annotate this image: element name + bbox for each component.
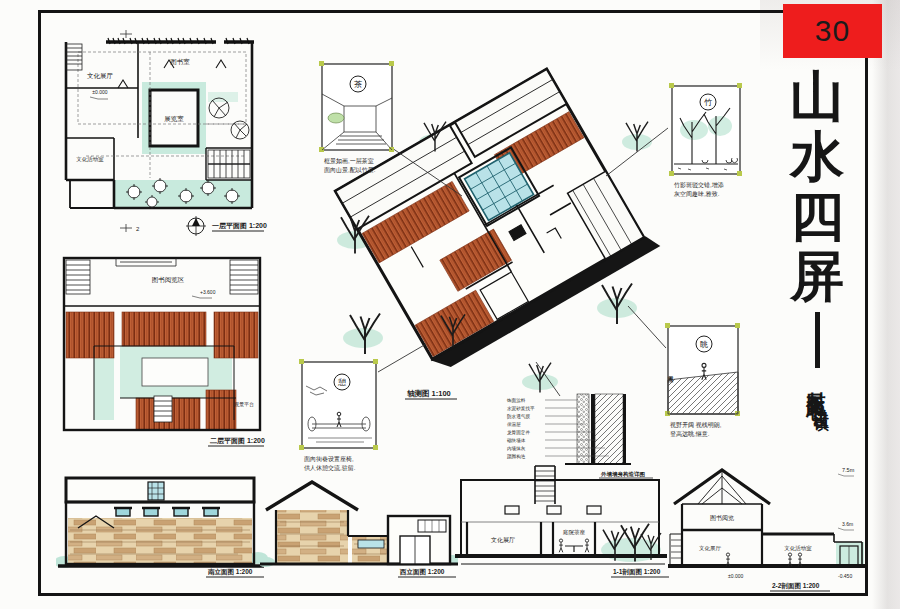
callout-note-2: 灰空间趣味,雅致.: [674, 190, 720, 198]
foliage-wash: [708, 116, 732, 136]
layer-note: 保温层: [506, 422, 521, 427]
plan2-level-leader: [192, 296, 212, 298]
west-elevation-caption: 西立面图 1:200: [399, 568, 445, 576]
plan2-level-mark: +3.600: [200, 289, 216, 295]
callout-note-2: 面向山景,配以竹景.: [324, 166, 376, 174]
callout-glyph: 茶: [354, 80, 362, 89]
elevation-marks: 7.5m 3.6m ±0.000 -0.450: [728, 467, 855, 579]
mark-zero: ±0.000: [728, 573, 743, 579]
elevation-windows: [114, 508, 220, 516]
callout-glyph: 竹: [704, 98, 712, 107]
section-1-1: 文化展厅 庭院茶座 1-1剖面图 1:200: [453, 458, 671, 582]
scan-edge-shadow: [872, 0, 900, 609]
layer-note: 砌块墙体: [506, 438, 526, 444]
callout-glyph: 憩: [337, 378, 346, 387]
layer-annotations: 饰面涂料 水泥砂浆找平 防水透气膜 保温层 龙骨固定件 砌块墙体 内墙抹灰 踢脚…: [506, 397, 535, 460]
subtitle-location: 汶口古镇: [804, 398, 830, 406]
first-floor-plan: 2: [56, 28, 268, 242]
title-char-4: 屏: [790, 246, 844, 306]
layer-note: 饰面涂料: [506, 397, 526, 404]
grid-tick-label: 2: [136, 226, 140, 232]
title-char-2: 水: [790, 126, 844, 186]
title-dash: [815, 312, 820, 368]
layer-note: 防水透气膜: [507, 413, 530, 420]
section1-room-mid: 庭院茶座: [563, 529, 586, 536]
mark-top: 7.5m: [842, 467, 855, 473]
wall-layers: [565, 394, 631, 464]
section1-caption: 1-1剖面图 1:200: [613, 568, 661, 576]
section2-room-left: 文化展厅: [699, 545, 722, 552]
strip-window: [358, 540, 384, 548]
room-label-view: 观景平台: [234, 401, 254, 408]
callout-note-1: 视野开阔 视线明朗,: [670, 421, 722, 429]
callout-tea: 茶 框景如画,一层茶室 面向山景,配以竹景.: [318, 60, 404, 186]
plan2-court-open: [142, 358, 208, 386]
presentation-board: 30 山 水 四 屏 村民文化中心 汶口古镇 2: [0, 0, 900, 609]
callout-note-1: 面向街巷设置座椅,: [304, 455, 354, 463]
second-floor-plan: 图书阅览区 +3.600 观景平台 二层平面图 1:200: [58, 250, 268, 450]
courtyard-figures: [559, 539, 589, 552]
callout-rest: 憩 面向街巷设置座椅, 供人休憩交流,驻留.: [296, 358, 388, 480]
bonsai-sketch: [328, 113, 344, 123]
axon-caption: 轴测图 1:100: [407, 389, 451, 398]
room-label-exhibition: 文化展厅: [87, 72, 114, 80]
layer-note: 内墙抹灰: [507, 445, 526, 451]
plan2-caption: 二层平面图 1:200: [210, 437, 265, 445]
room-label-multi: 展览室: [164, 115, 184, 123]
level-mark: ±0.000: [92, 89, 107, 95]
layer-note: 水泥砂浆找平: [507, 405, 535, 412]
title-char-1: 山: [790, 66, 844, 126]
wood-siding: [276, 510, 348, 564]
section2-room-top: 图书阅览: [710, 514, 734, 522]
section-2-2: 图书阅览 文化展厅 文化活动室 7.5m 3.6m ±0.000 -0.450 …: [666, 458, 868, 594]
section2-caption: 2-2剖面图 1:200: [772, 582, 820, 590]
plan-tree-icon: [209, 98, 249, 139]
wood-siding: [68, 518, 252, 564]
layer-note: 龙骨固定件: [507, 429, 530, 436]
callout-view: 可上人屋面 眺 视野开阔 视线明朗, 登高远眺,惬意.: [660, 322, 754, 448]
mark-low: -0.450: [838, 573, 852, 579]
section1-room-left: 文化展厅: [491, 536, 515, 544]
mark-mid: 3.6m: [842, 521, 853, 527]
foliage-wash: [680, 120, 708, 140]
room-label-reading: 图书阅览区: [152, 276, 185, 284]
north-arrow-icon: [186, 216, 206, 236]
section2-room-mid: 文化活动室: [784, 545, 812, 552]
south-elevation-caption: 南立面图 1:200: [207, 568, 253, 576]
plan1-caption: 一层平面图 1:200: [212, 222, 267, 230]
top-wall-hatch: [106, 38, 254, 44]
callout-glyph: 眺: [700, 340, 708, 349]
west-elevation: 西立面图 1:200: [260, 478, 458, 580]
sheet-number: 30: [815, 14, 850, 48]
callout-note-1: 竹影斑驳交错,增添: [674, 181, 724, 189]
callout-note-2: 供人休憩交流,驻留.: [304, 464, 356, 472]
subtitle-main: 村民文化中心: [804, 376, 830, 388]
title-column: 山 水 四 屏 村民文化中心 汶口古镇: [774, 66, 860, 496]
callout-note-1: 框景如画,一层茶室: [324, 157, 374, 165]
room-label-library: 图书室: [170, 58, 190, 65]
callout-note-2: 登高远眺,惬意.: [670, 430, 710, 438]
level-mark-leader: [90, 97, 108, 99]
sheet-number-tab: 30: [783, 4, 882, 58]
south-elevation: 南立面图 1:200: [56, 470, 268, 582]
room-label-activity: 文化活动室: [76, 156, 104, 163]
title-char-3: 四: [790, 186, 844, 246]
callout-bamboo: 竹 竹影斑驳交错,增添 灰空间趣味,雅致.: [666, 82, 752, 208]
